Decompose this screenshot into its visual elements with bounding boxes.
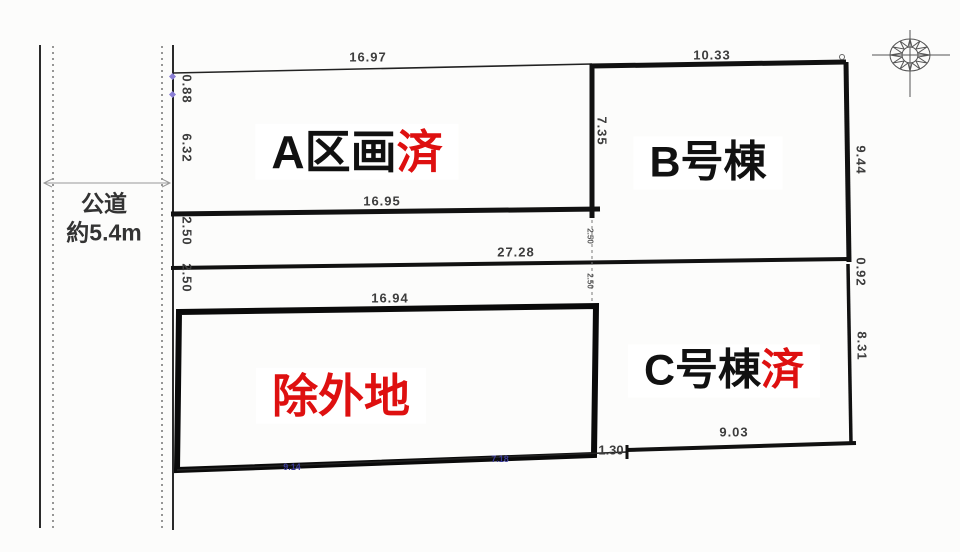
plot-c-label: C号棟済 <box>628 344 820 397</box>
dim-excluded-bottom-left: 9.14 <box>283 462 301 472</box>
dim-a-top: 16.97 <box>349 50 387 65</box>
dim-c-bottom: 9.03 <box>719 425 748 440</box>
excluded-land-label: 除外地 <box>256 368 426 424</box>
site-plan: 公道 約5.4m A区画済 B号棟 除外地 C号棟済 16.97 10.33 0… <box>0 0 960 552</box>
survey-point-marker-upper <box>169 73 176 80</box>
plot-c-bottom-line <box>627 443 856 450</box>
plot-a-status: 済 <box>397 126 443 178</box>
plot-a-label: A区画済 <box>255 124 458 180</box>
dim-strip2-mid: 2.50 <box>586 273 595 289</box>
dim-excluded-top: 16.94 <box>371 291 409 306</box>
plan-lines <box>0 0 960 552</box>
plot-b-label: B号棟 <box>633 136 782 189</box>
dim-c-right: 8.31 <box>855 331 870 360</box>
road-label: 公道 約5.4m <box>66 189 141 247</box>
plot-c-name: C号棟 <box>644 346 761 394</box>
dim-strip1-mid: 2.50 <box>586 228 595 244</box>
dim-c-bottom-left: 1.30 <box>598 443 623 458</box>
compass-icon <box>872 30 950 97</box>
south-survey-line <box>177 452 627 470</box>
dim-strip1-left: 2.50 <box>180 216 195 245</box>
corner-point-marker <box>840 55 845 60</box>
plot-a-bottom-line <box>171 209 600 214</box>
dim-b-top: 10.33 <box>693 48 731 63</box>
plot-c-right-line <box>848 264 851 444</box>
dim-mid-width: 27.28 <box>497 245 535 260</box>
plot-c-status: 済 <box>761 346 804 394</box>
dim-a-bottom: 16.95 <box>363 194 401 209</box>
dim-c-right-offset: 0.92 <box>854 257 869 286</box>
plot-b-name: B号棟 <box>649 138 766 186</box>
dim-b-right: 9.44 <box>854 145 869 174</box>
road-width-value: 約5.4m <box>66 218 141 247</box>
dim-a-left-lower: 6.32 <box>180 133 195 162</box>
middle-boundary-line <box>171 259 849 268</box>
plot-a-name: A区画 <box>271 126 396 178</box>
survey-point-marker-lower <box>169 91 176 98</box>
excluded-land-name: 除外地 <box>272 370 410 422</box>
dim-b-left: 7.35 <box>595 116 610 145</box>
plot-a-top-line <box>173 64 592 73</box>
plot-b-right-line <box>846 62 849 262</box>
dim-a-left-upper: 0.88 <box>180 74 195 103</box>
dim-strip2-left: 2.50 <box>180 263 195 292</box>
dim-excluded-bottom-right: 7.18 <box>491 454 509 464</box>
road-name: 公道 <box>66 189 141 218</box>
